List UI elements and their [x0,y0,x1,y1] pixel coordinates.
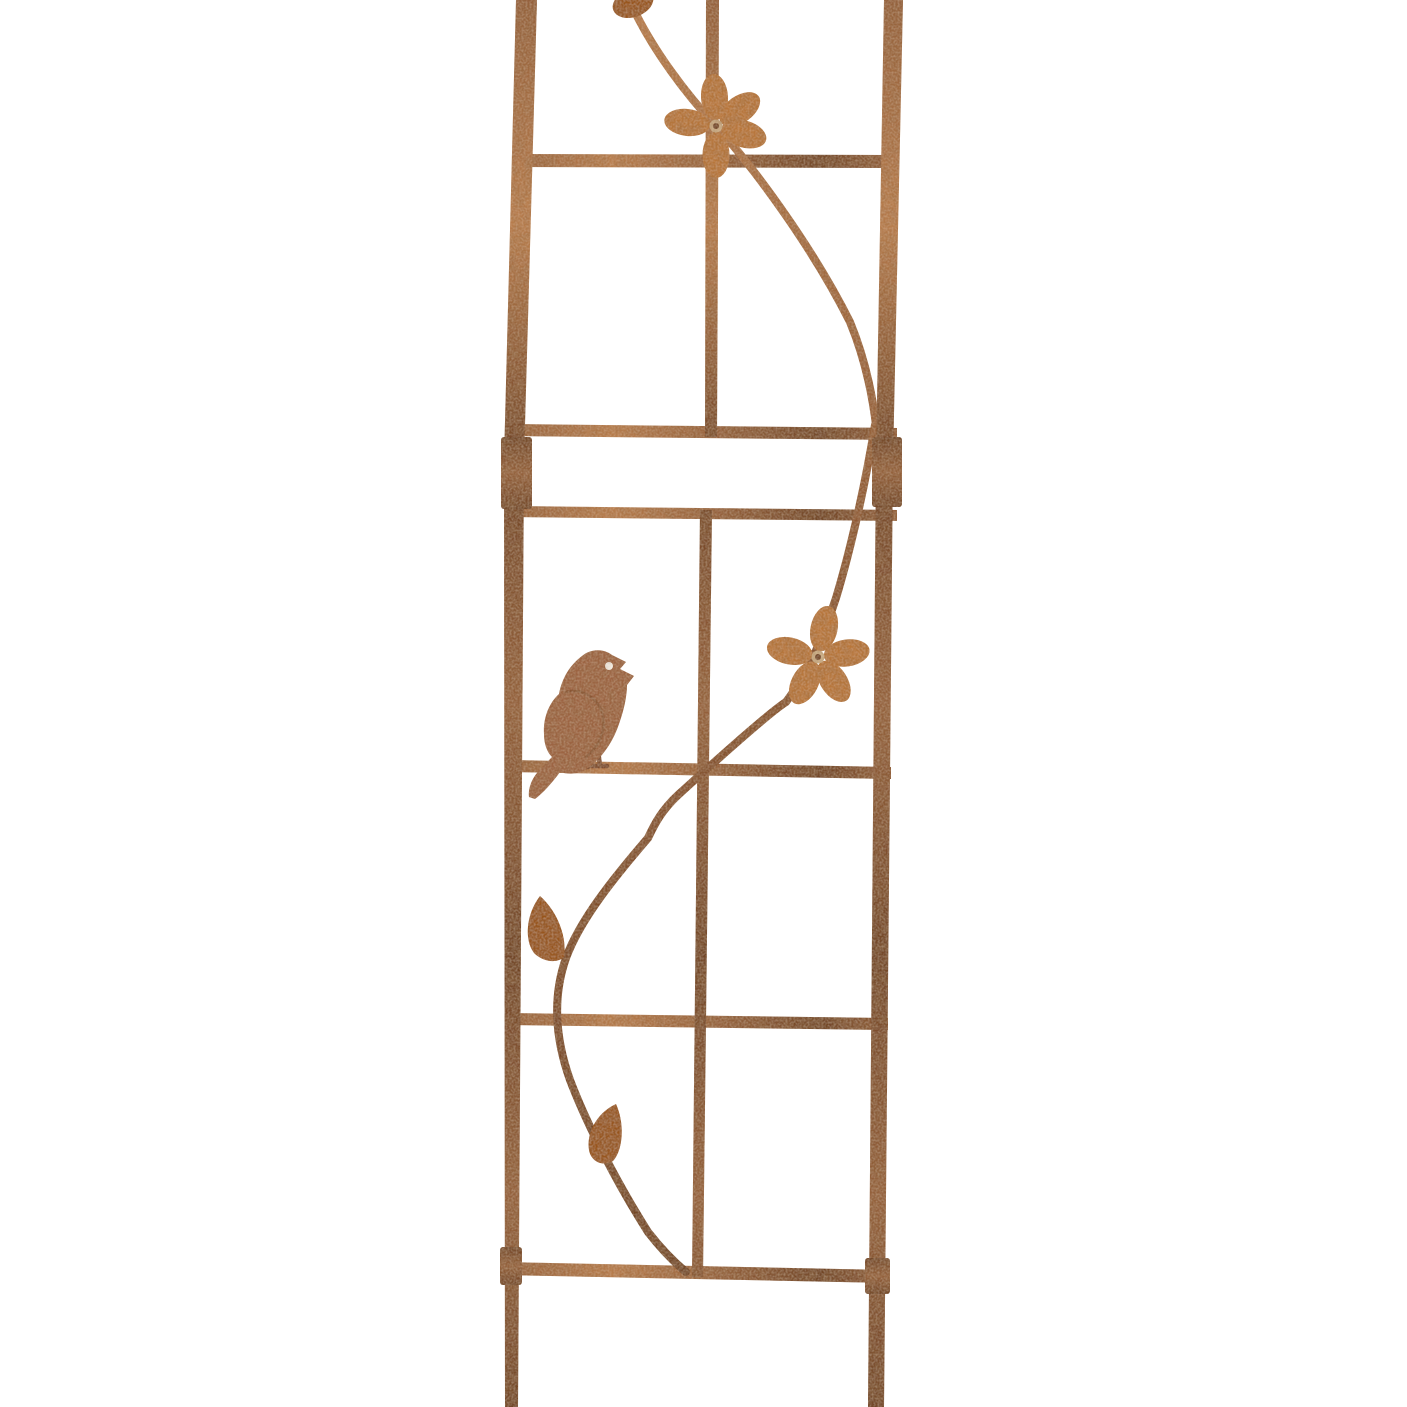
joint-sleeve-right-bottom [865,1258,890,1294]
center-bar-upper [705,0,719,437]
flower-petal [703,132,730,178]
joint-sleeve-right-mid [872,437,902,507]
product-photo: Rusted metal garden trellis panel decora… [0,0,1407,1407]
bird-eye [605,662,613,670]
flower-hub-pin [815,654,821,660]
trellis-illustration: Rusted metal garden trellis panel decora… [0,0,1407,1407]
joint-sleeve-left-bottom [500,1247,522,1285]
flower-hub-pin [713,123,719,129]
joint-sleeve-left-mid [501,437,532,509]
